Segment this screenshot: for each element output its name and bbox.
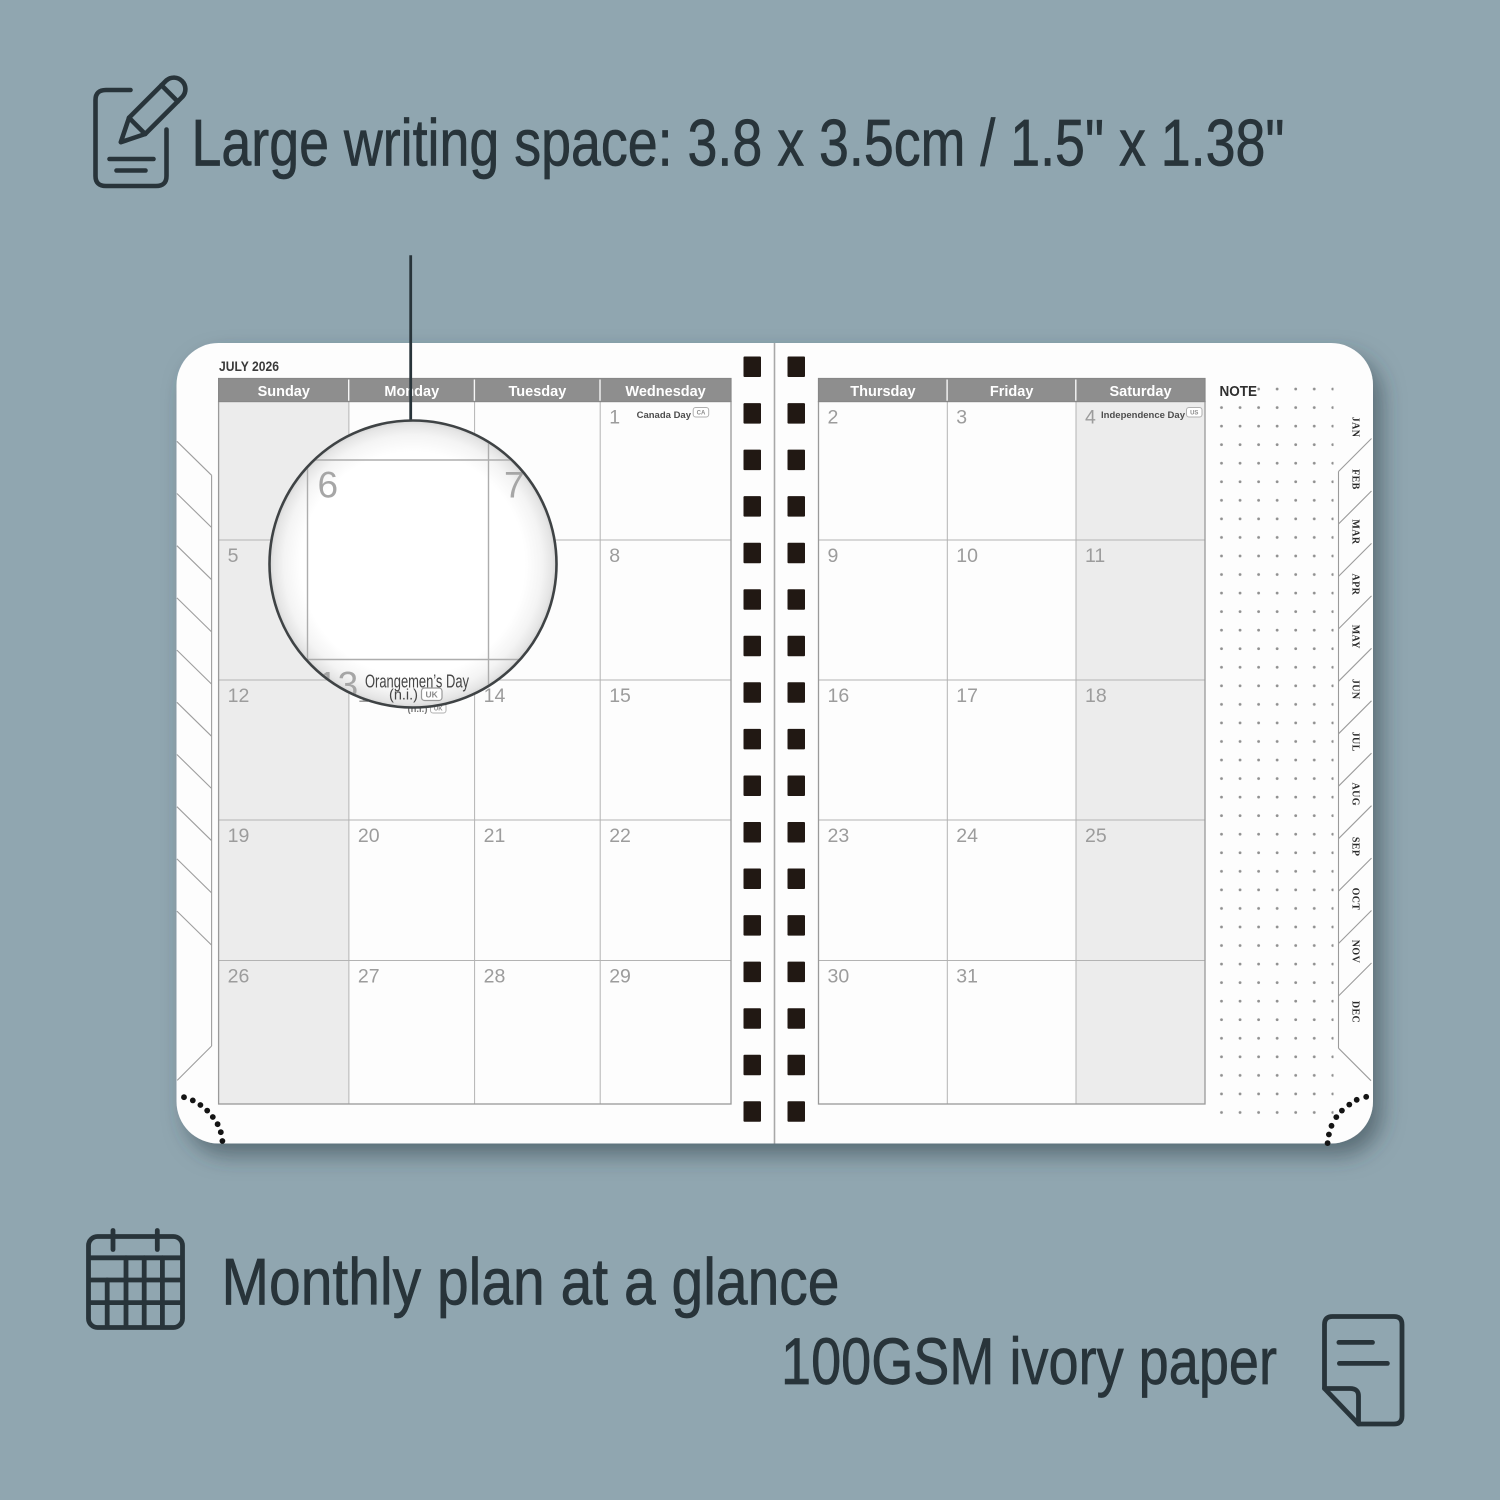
svg-text:20: 20 [358, 825, 380, 847]
svg-text:NOTE: NOTE [1220, 384, 1258, 400]
svg-text:28: 28 [484, 966, 506, 988]
svg-text:15: 15 [609, 685, 631, 707]
svg-text:APR: APR [1350, 574, 1361, 596]
svg-text:8: 8 [609, 545, 620, 567]
svg-text:31: 31 [956, 966, 978, 988]
svg-text:US: US [1190, 411, 1198, 417]
svg-text:29: 29 [609, 966, 631, 988]
svg-text:18: 18 [1085, 685, 1107, 707]
svg-text:MAR: MAR [1350, 519, 1361, 544]
svg-text:25: 25 [1085, 825, 1107, 847]
svg-text:16: 16 [828, 685, 850, 707]
svg-text:19: 19 [228, 825, 250, 847]
svg-text:Sunday: Sunday [258, 384, 310, 400]
svg-text:12: 12 [228, 685, 250, 707]
svg-text:11: 11 [1085, 545, 1105, 567]
svg-text:(n.i.): (n.i.) [389, 688, 418, 704]
svg-text:UK: UK [426, 690, 439, 700]
svg-text:Monthly plan at a glance: Monthly plan at a glance [222, 1245, 840, 1319]
svg-text:JAN: JAN [1350, 417, 1361, 438]
svg-text:Thursday: Thursday [850, 384, 915, 400]
svg-text:FEB: FEB [1350, 469, 1361, 490]
svg-text:Independence Day: Independence Day [1101, 410, 1186, 421]
svg-text:SEP: SEP [1350, 837, 1361, 857]
svg-text:JUL: JUL [1350, 732, 1361, 752]
svg-text:21: 21 [484, 825, 506, 847]
svg-text:100GSM ivory paper: 100GSM ivory paper [781, 1324, 1277, 1398]
svg-text:4: 4 [1085, 407, 1096, 429]
svg-text:Wednesday: Wednesday [625, 384, 705, 400]
svg-text:6: 6 [318, 465, 339, 506]
svg-text:OCT: OCT [1350, 888, 1361, 911]
svg-text:DEC: DEC [1350, 1001, 1361, 1023]
svg-text:CA: CA [697, 411, 706, 417]
svg-text:JUN: JUN [1350, 679, 1361, 700]
svg-text:17: 17 [956, 685, 978, 707]
svg-text:24: 24 [956, 825, 978, 847]
svg-text:Friday: Friday [990, 384, 1034, 400]
svg-text:MAY: MAY [1350, 625, 1361, 650]
svg-text:Saturday: Saturday [1109, 384, 1171, 400]
svg-text:AUG: AUG [1350, 782, 1361, 805]
svg-text:22: 22 [609, 825, 631, 847]
svg-text:Tuesday: Tuesday [509, 384, 567, 400]
svg-text:27: 27 [358, 966, 380, 988]
svg-text:30: 30 [828, 966, 850, 988]
svg-text:10: 10 [956, 545, 978, 567]
svg-text:JULY 2026: JULY 2026 [219, 358, 279, 374]
svg-text:NOV: NOV [1350, 940, 1361, 964]
svg-text:5: 5 [228, 545, 239, 567]
svg-text:26: 26 [228, 966, 250, 988]
svg-text:UK: UK [434, 707, 443, 713]
svg-text:9: 9 [828, 545, 839, 567]
svg-text:23: 23 [828, 825, 850, 847]
svg-text:2: 2 [828, 407, 839, 429]
svg-text:1: 1 [609, 407, 620, 429]
svg-text:Canada Day: Canada Day [637, 410, 692, 421]
svg-text:3: 3 [956, 407, 967, 429]
svg-text:Large writing space: 3.8 x 3.5: Large writing space: 3.8 x 3.5cm / 1.5" … [192, 105, 1285, 179]
